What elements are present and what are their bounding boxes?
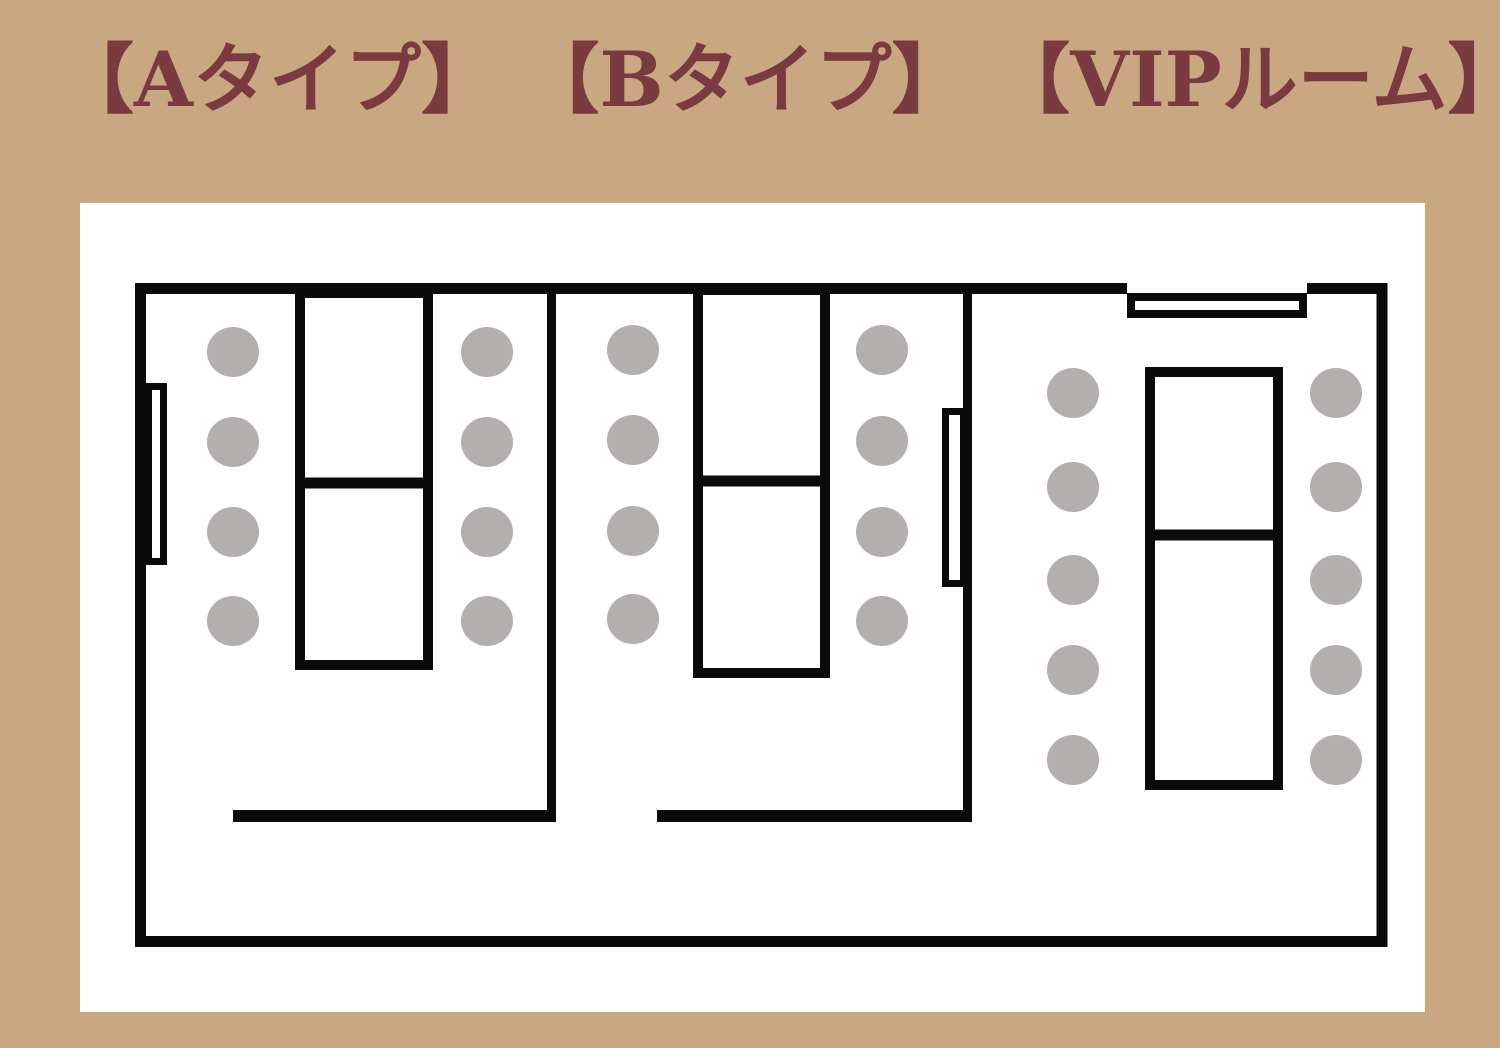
page-background: { "title": { "full_text": "【Aタイプ】 【Bタイプ】… <box>0 0 1500 1048</box>
chairs-a-right-3 <box>461 507 513 557</box>
chairs-b-left-3 <box>607 506 659 556</box>
table-vip <box>1150 372 1278 785</box>
vip-entrance-wall-gap <box>1127 282 1307 294</box>
chairs-vip-left-2 <box>1047 462 1099 512</box>
door-vip-entrance <box>1131 297 1303 314</box>
chairs-a-right-4 <box>461 596 513 646</box>
floor-plan-svg <box>0 0 1500 1048</box>
chairs-b-left-2 <box>607 415 659 465</box>
chairs-a-right-2 <box>461 417 513 467</box>
chairs-a-left-3 <box>207 507 259 557</box>
chairs-vip-left-1 <box>1047 368 1099 418</box>
chairs-vip-left-5 <box>1047 735 1099 785</box>
chairs-vip-left-3 <box>1047 555 1099 605</box>
chairs-a-left-1 <box>207 327 259 377</box>
door-room-b <box>946 412 964 584</box>
chairs-b-left-4 <box>607 594 659 644</box>
chairs-a-left-2 <box>207 417 259 467</box>
chairs-b-right-1 <box>856 325 908 375</box>
chairs-b-right-3 <box>856 507 908 557</box>
chairs-b-right-4 <box>856 596 908 646</box>
chairs-vip-right-1 <box>1310 368 1362 418</box>
chairs-vip-right-5 <box>1310 735 1362 785</box>
door-room-a <box>149 387 164 562</box>
chairs-vip-left-4 <box>1047 645 1099 695</box>
chairs-a-right-1 <box>461 327 513 377</box>
chairs-b-right-2 <box>856 416 908 466</box>
chairs-vip-right-3 <box>1310 555 1362 605</box>
chairs-b-left-1 <box>607 325 659 375</box>
chairs-vip-right-4 <box>1310 645 1362 695</box>
chairs-a-left-4 <box>207 596 259 646</box>
chairs-vip-right-2 <box>1310 462 1362 512</box>
